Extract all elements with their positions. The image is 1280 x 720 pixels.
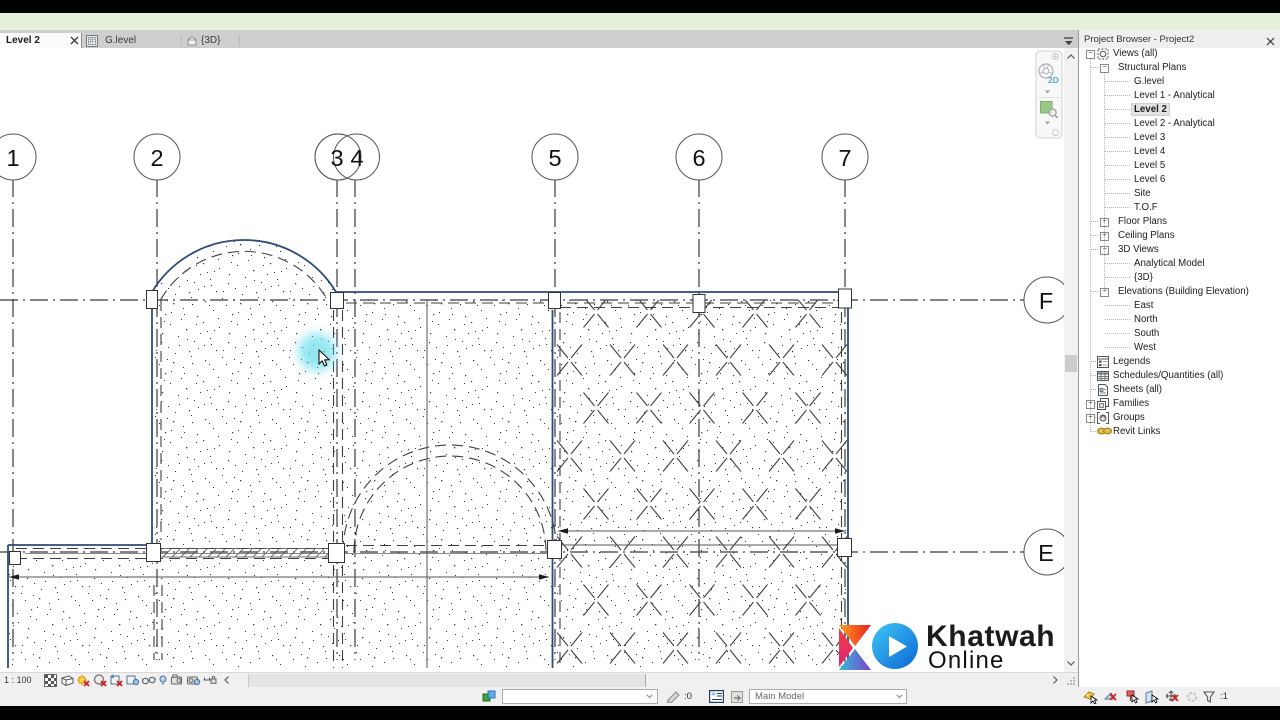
- svg-text:1: 1: [6, 145, 19, 171]
- svg-text:6: 6: [692, 145, 705, 171]
- svg-text:Online: Online: [928, 647, 1005, 672]
- svg-text:7: 7: [838, 145, 851, 171]
- svg-text:F: F: [1039, 288, 1053, 314]
- svg-text:2: 2: [150, 145, 163, 171]
- svg-text:5: 5: [548, 145, 561, 171]
- svg-text:3: 3: [330, 145, 343, 171]
- svg-text:E: E: [1038, 540, 1054, 566]
- svg-text:2D: 2D: [1048, 75, 1059, 85]
- svg-text:4: 4: [350, 145, 363, 171]
